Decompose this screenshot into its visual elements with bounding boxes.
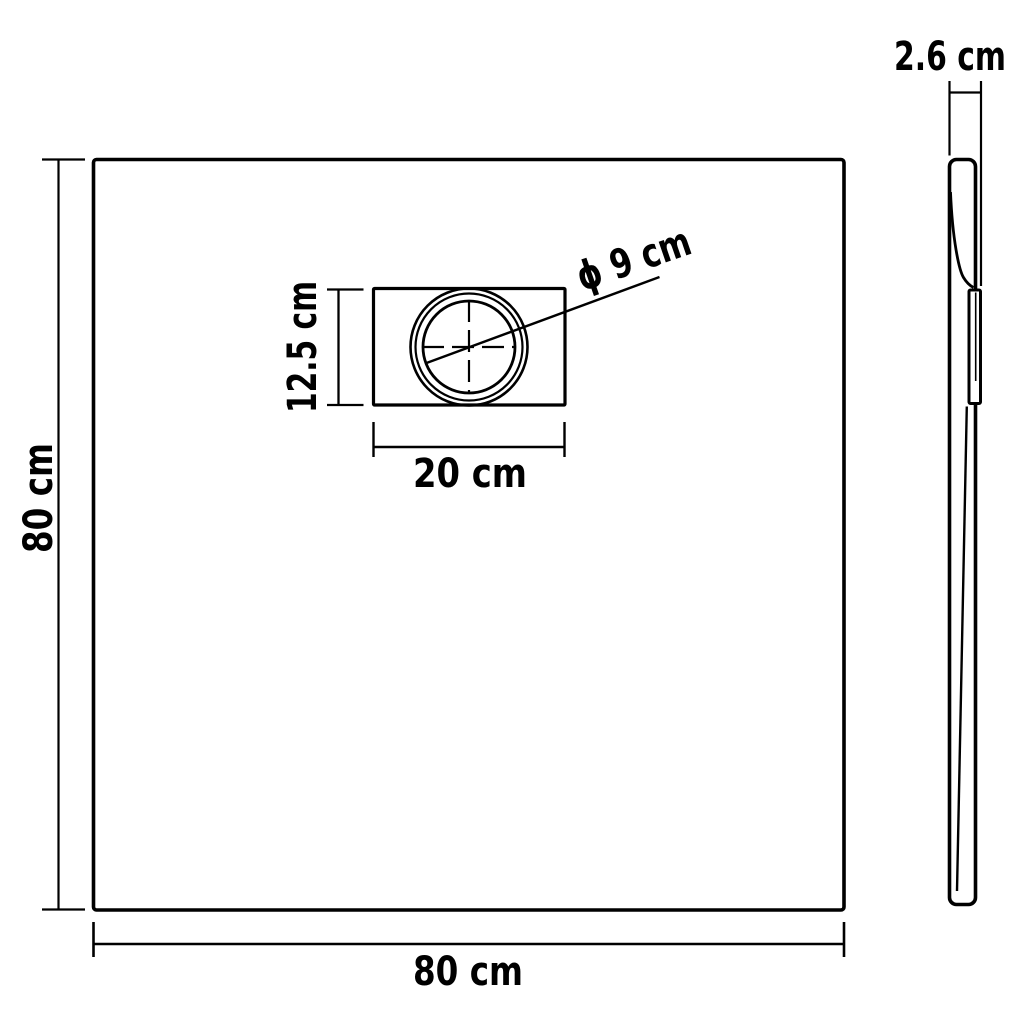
drain-plate-width-label: 20 cm: [413, 451, 527, 497]
dim-drain-diameter: ϕ 9 cm: [570, 219, 697, 301]
dim-overall-width: 80 cm: [94, 922, 845, 995]
overall-width-label: 80 cm: [413, 949, 523, 995]
drain-diameter-label: ϕ 9 cm: [570, 219, 697, 301]
dim-drain-plate-height: 12.5 cm: [280, 281, 364, 413]
thickness-label: 2.6 cm: [894, 34, 1006, 80]
side-view-top-slope-line: [951, 192, 974, 288]
top-view: [94, 160, 845, 911]
side-view: [950, 160, 981, 905]
tray-top-view-outline: [94, 160, 845, 911]
overall-depth-label: 80 cm: [16, 443, 62, 553]
side-view-drain-box: [969, 290, 981, 404]
drain-plate-height-label: 12.5 cm: [280, 281, 326, 413]
dim-overall-depth: 80 cm: [16, 160, 85, 910]
drain-detail: [374, 277, 660, 406]
side-view-outline: [950, 160, 976, 905]
dim-drain-plate-width: 20 cm: [374, 422, 565, 497]
dimension-diagram: 12.5 cm 20 cm ϕ 9 cm 80 cm 80 cm 2.: [0, 0, 1024, 1024]
side-view-bottom-slope-line: [957, 407, 967, 892]
